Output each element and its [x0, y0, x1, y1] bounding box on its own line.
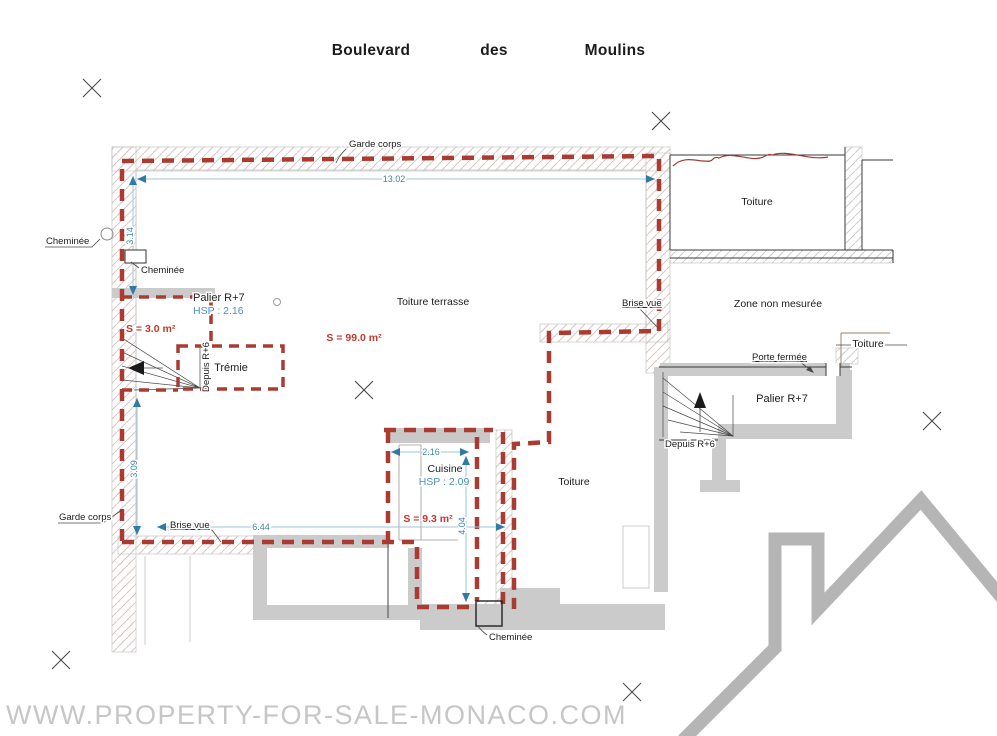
label-toiture-right: Toiture	[852, 338, 884, 350]
floor-plan-page: 13.02 3.14 3.09 6.44 2.16 4.04	[0, 0, 997, 736]
label-cuisine: Cuisine	[427, 463, 462, 475]
dim-kitchen-width: 2.16	[422, 447, 440, 457]
x-mark	[923, 412, 941, 430]
label-garde-corps-left: Garde corps	[59, 512, 112, 523]
label-brise-vue-bottom: Brise vue	[170, 520, 210, 531]
label-palier-left-hsp: HSP : 2.16	[193, 305, 244, 317]
label-cuisine-hsp: HSP : 2.09	[419, 476, 470, 488]
dim-bottom-width: 6.44	[252, 522, 270, 532]
stairs-right	[663, 372, 733, 437]
label-cheminee-left: Cheminée	[46, 236, 89, 247]
label-brise-vue-right: Brise vue	[622, 298, 662, 309]
x-mark	[652, 112, 670, 130]
dim-left-top: 3.14	[125, 227, 135, 245]
label-palier-left: Palier R+7	[193, 292, 245, 304]
label-zone-non-mesuree: Zone non mesurée	[734, 298, 822, 310]
chimney-box-bottom	[476, 601, 502, 626]
label-garde-corps-top: Garde corps	[349, 139, 402, 150]
house-roofline-logo	[683, 500, 997, 736]
label-depuis-r6-left: Depuis R+6	[201, 342, 212, 392]
x-mark	[52, 651, 70, 669]
dim-left-bottom: 3.09	[129, 460, 139, 478]
chimney-flue-circle	[101, 228, 113, 240]
dim-top-width: 13.02	[383, 174, 406, 184]
x-mark	[623, 683, 641, 701]
label-depuis-r6-right: Depuis R+6	[665, 439, 715, 450]
floor-plan-drawing: 13.02 3.14 3.09 6.44 2.16 4.04	[0, 0, 997, 736]
street-title: Boulevard des Moulins	[332, 42, 646, 59]
label-porte-fermee: Porte fermée	[752, 352, 807, 363]
label-cheminee-bottom: Cheminée	[489, 632, 532, 643]
stairs-right-direction-arrow	[694, 392, 706, 408]
small-drain-circle	[274, 299, 281, 306]
solid-walls	[112, 288, 852, 630]
street-word-2: des	[480, 42, 508, 59]
label-toiture-terrasse: Toiture terrasse	[397, 296, 470, 308]
measured-boundary	[122, 153, 828, 609]
dim-kitchen-height: 4.04	[457, 517, 467, 535]
label-palier-left-area: S = 3.0 m²	[126, 323, 176, 335]
x-mark	[83, 79, 101, 97]
label-toiture-top-right: Toiture	[741, 196, 773, 208]
x-mark	[355, 381, 373, 399]
street-word-1: Boulevard	[332, 42, 411, 59]
label-terrasse-area: S = 99.0 m²	[326, 332, 382, 344]
label-cuisine-area: S = 9.3 m²	[403, 513, 453, 525]
label-toiture-mid: Toiture	[558, 476, 590, 488]
label-cheminee-left-2: Cheminée	[141, 265, 184, 276]
chimney-box-left	[125, 250, 146, 263]
label-palier-right: Palier R+7	[756, 393, 808, 405]
label-tremie: Trémie	[214, 362, 248, 374]
street-word-3: Moulins	[585, 42, 646, 59]
watermark-text: WWW.PROPERTY-FOR-SALE-MONACO.COM	[6, 700, 627, 730]
